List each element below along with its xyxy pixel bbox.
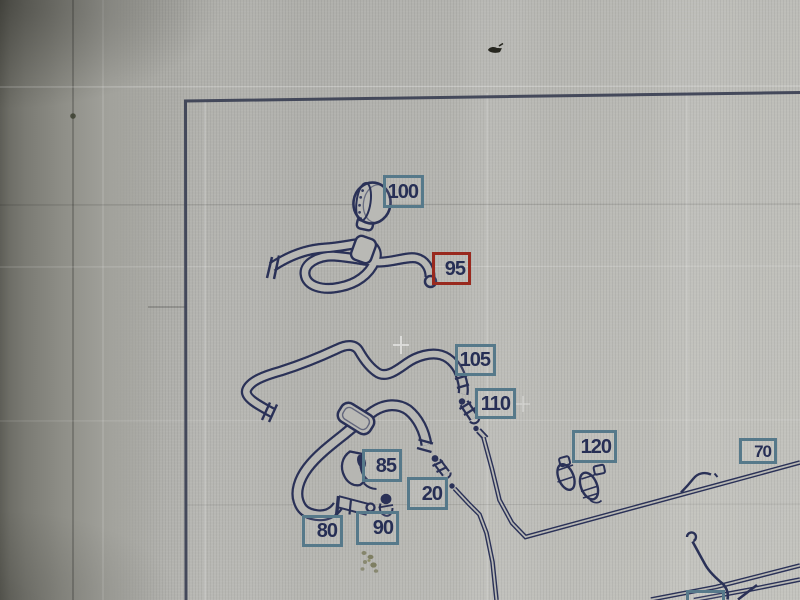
callout-95[interactable]: 95 (432, 252, 471, 285)
callout-70[interactable]: 70 (739, 438, 777, 464)
callout-120[interactable]: 120 (572, 430, 617, 463)
hose-95-drawing (267, 217, 436, 288)
diagram-layer: 100 95 105 110 85 20 80 90 120 70 (0, 0, 800, 600)
callout-20[interactable]: 20 (407, 477, 448, 510)
callout-85[interactable]: 85 (362, 449, 402, 482)
screen-photo: 100 95 105 110 85 20 80 90 120 70 (0, 0, 800, 600)
callout-105[interactable]: 105 (455, 344, 496, 376)
grid-lines (0, 0, 800, 600)
callout-80[interactable]: 80 (302, 515, 343, 547)
callout-100[interactable]: 100 (383, 175, 424, 208)
parts-drawing (0, 0, 800, 600)
callout-partial-clipped[interactable] (686, 590, 725, 600)
callout-110[interactable]: 110 (475, 388, 516, 419)
callout-90[interactable]: 90 (356, 511, 399, 545)
fitting-20-drawing (432, 455, 451, 478)
